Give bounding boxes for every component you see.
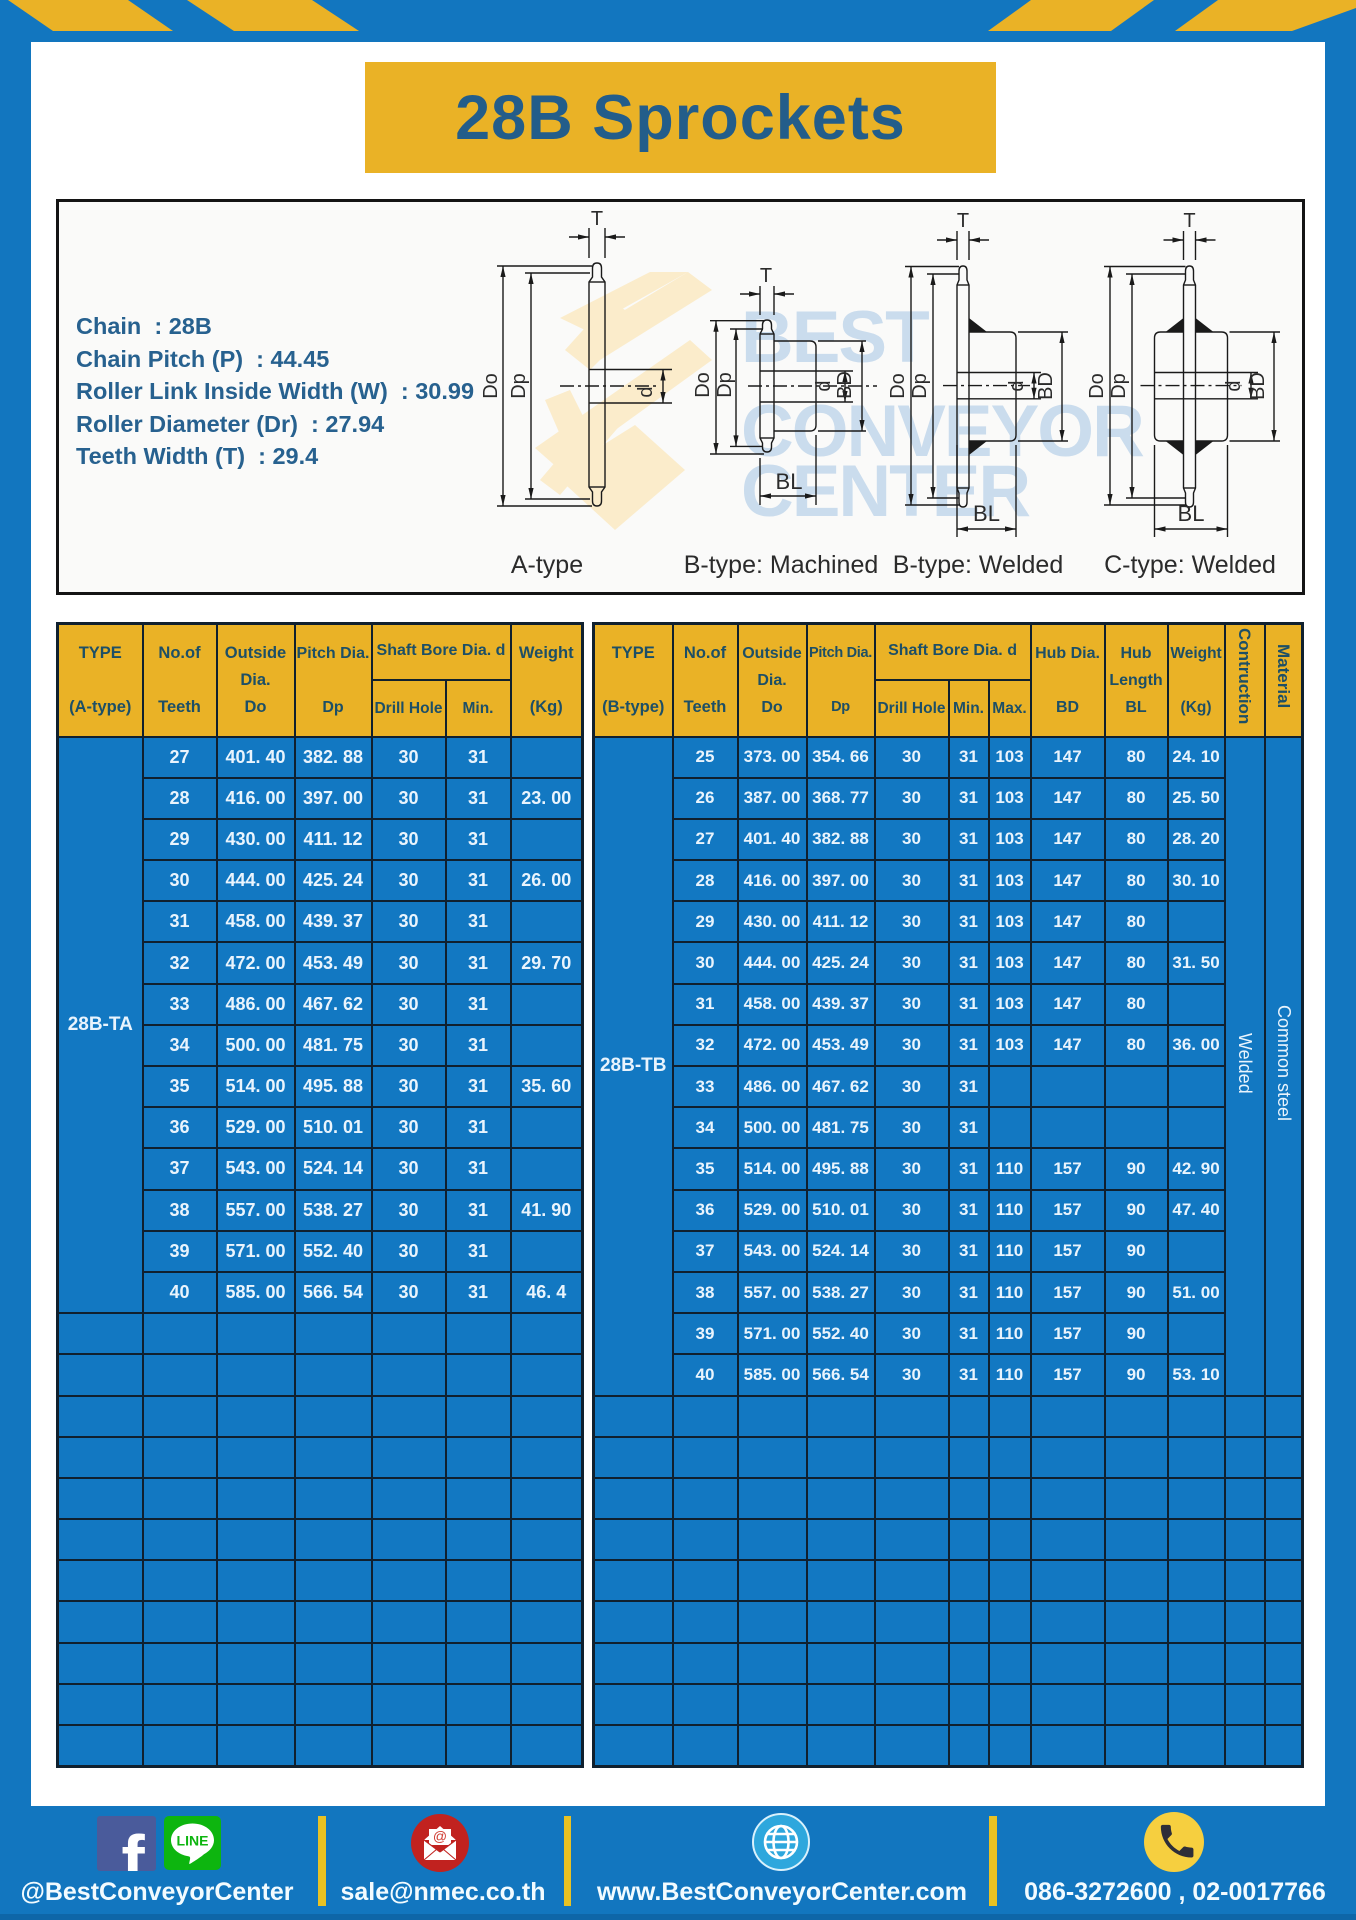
svg-text:T: T [1183,210,1195,232]
svg-text:Dp: Dp [1108,373,1130,399]
svg-text:d: d [1223,380,1245,391]
svg-text:LINE: LINE [177,1833,209,1849]
svg-text:B-type: Welded: B-type: Welded [893,551,1063,579]
svg-text:Dp: Dp [714,372,736,398]
svg-text:BL: BL [973,501,1000,526]
svg-text:d: d [635,386,657,397]
svg-text:A-type: A-type [511,551,583,579]
svg-text:Do: Do [1086,373,1108,399]
svg-text:B-type: Machined: B-type: Machined [684,551,879,579]
svg-text:d: d [813,380,835,391]
svg-text:BD: BD [834,371,856,399]
svg-text:T: T [591,208,603,230]
svg-text:C-type: Welded: C-type: Welded [1104,551,1276,579]
svg-text:Do: Do [887,373,909,399]
svg-text:Do: Do [480,373,502,399]
svg-text:Dp: Dp [508,373,530,399]
svg-text:f: f [121,1821,145,1871]
svg-text:d: d [1006,380,1028,391]
svg-text:BD: BD [1035,372,1057,400]
svg-text:Do: Do [692,372,714,398]
svg-text:T: T [957,210,969,232]
svg-text:Dp: Dp [909,373,931,399]
svg-text:BL: BL [1178,501,1205,526]
svg-text:BD: BD [1247,372,1269,400]
svg-text:BL: BL [776,469,803,494]
svg-text:T: T [760,265,772,287]
svg-text:@: @ [433,1828,447,1844]
